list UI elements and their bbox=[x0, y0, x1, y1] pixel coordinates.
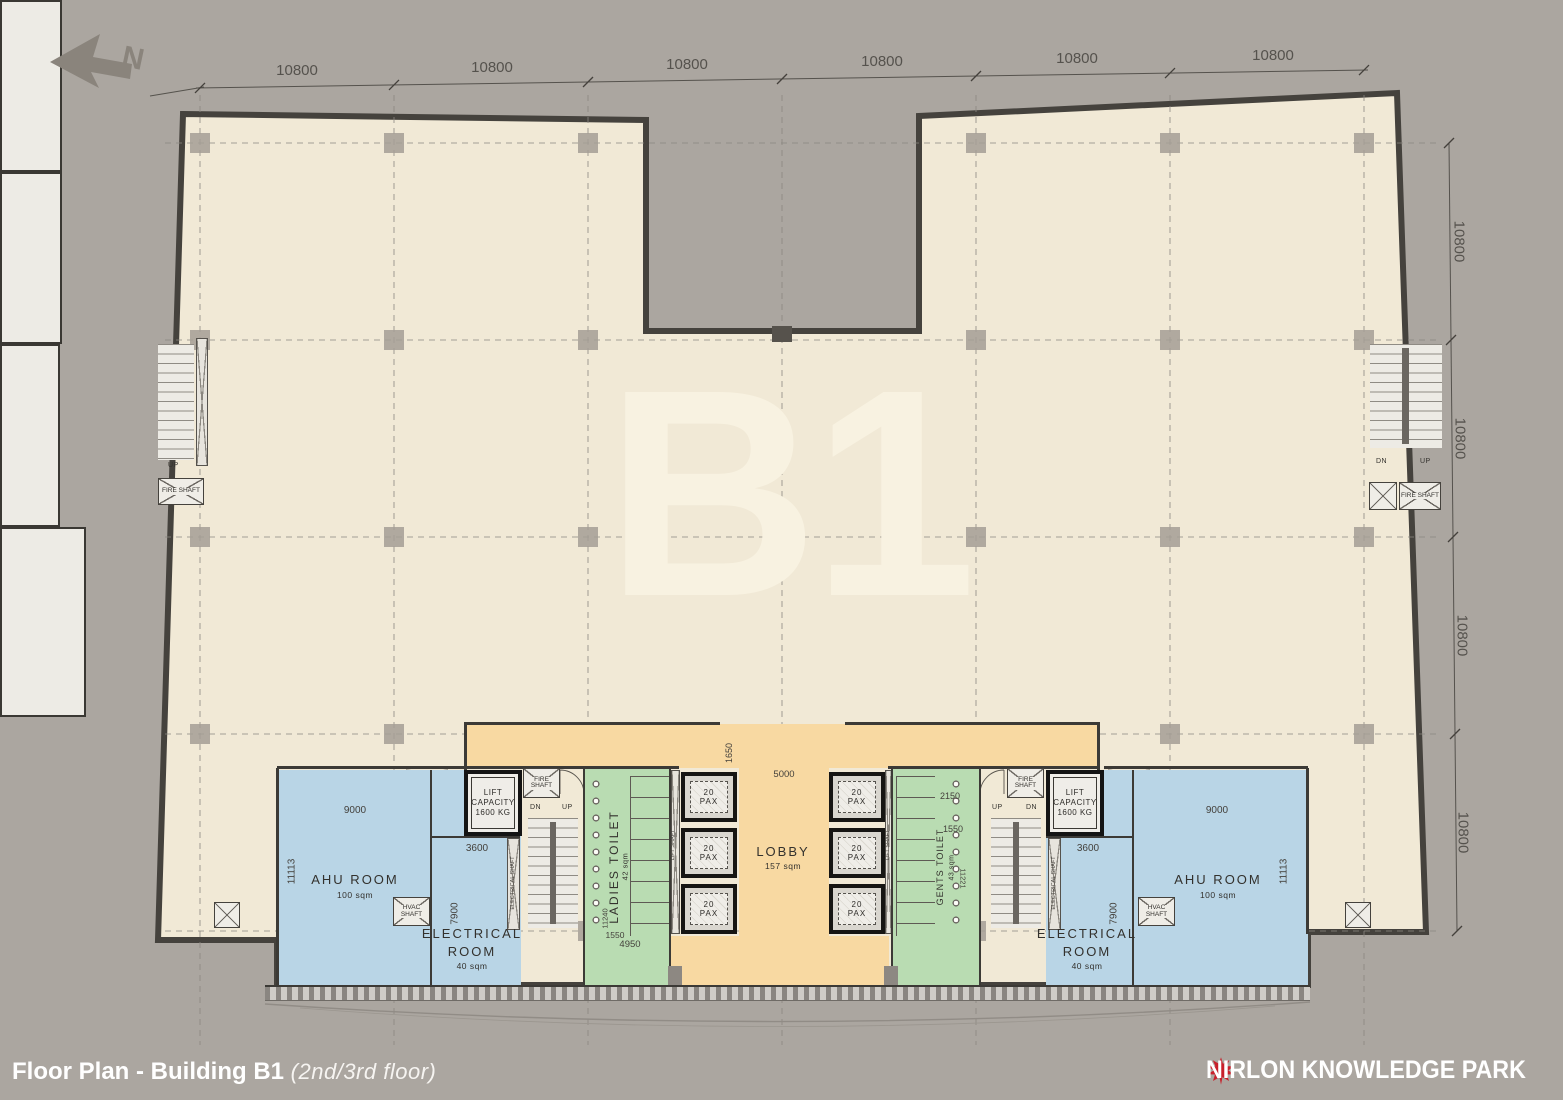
stair-stringer bbox=[1402, 348, 1409, 444]
room-name-electrical-left: ELECTRICAL bbox=[412, 926, 532, 941]
room-area-lobby: 157 sqm bbox=[733, 861, 833, 871]
fire-shaft-label: FIRE SHAFT bbox=[524, 777, 559, 790]
column bbox=[1160, 330, 1180, 350]
lift-cell: 20PAX bbox=[829, 884, 885, 934]
dimension-label: 7900 bbox=[450, 894, 461, 934]
stair-dn-label: DN bbox=[1026, 804, 1037, 811]
hvac-shaft-label: HVAC SHAFT bbox=[394, 905, 429, 918]
dimension-label: 10800 bbox=[657, 56, 717, 73]
lift-capacity-line: 1600 KG bbox=[1057, 808, 1092, 818]
dimension-label: 10800 bbox=[267, 62, 327, 79]
wall bbox=[1046, 836, 1134, 838]
lift-capacity-plate: LIFT CAPACITY 1600 KG bbox=[471, 777, 515, 829]
lift-pax-label: PAX bbox=[848, 797, 866, 806]
column bbox=[1354, 527, 1374, 547]
column bbox=[1160, 133, 1180, 153]
lift-pax-label: 20 bbox=[852, 844, 863, 853]
north-arrow-icon bbox=[50, 34, 132, 88]
lift-capacity-box-right: LIFT CAPACITY 1600 KG bbox=[1046, 770, 1104, 836]
column bbox=[966, 133, 986, 153]
room-area-electrical-left: 40 sqm bbox=[412, 961, 532, 971]
wall bbox=[1104, 766, 1308, 769]
hvac-shaft-box: HVAC SHAFT bbox=[1138, 897, 1175, 926]
lift-pax-label: PAX bbox=[700, 853, 718, 862]
column bbox=[384, 133, 404, 153]
dimension-label: 9000 bbox=[330, 805, 380, 816]
stair-up-label: UP bbox=[168, 462, 179, 469]
brand-lockup: NIRLON KNOWLEDGE PARK bbox=[1206, 1056, 1550, 1085]
floor-plan-sheet: B1 FIRE SHAFT UP DN UP FIRE SHAFT LIFT C… bbox=[0, 0, 1563, 1100]
room-area-electrical-right: 40 sqm bbox=[1027, 961, 1147, 971]
lift-pax-label: PAX bbox=[848, 853, 866, 862]
room-area-gents-toilet: 43 sqm bbox=[949, 838, 956, 898]
dimension-label: 7900 bbox=[1109, 894, 1120, 934]
fire-shaft-box: FIRE SHAFT bbox=[1399, 482, 1441, 510]
room-area-ladies-toilet: 42 sqm bbox=[621, 837, 630, 897]
lift-cell: 20PAX bbox=[681, 828, 737, 878]
dimension-label: 5000 bbox=[759, 769, 809, 780]
hvac-shaft-box: HVAC SHAFT bbox=[393, 897, 430, 926]
room-name-electrical-left: ROOM bbox=[412, 944, 532, 959]
dimension-label: 1550 bbox=[928, 824, 978, 834]
facade-band bbox=[265, 985, 1310, 1001]
dimension-label: 10800 bbox=[1452, 409, 1469, 469]
ladies-toilet-stalls bbox=[630, 776, 669, 936]
wall bbox=[669, 768, 671, 985]
lift-car: 20PAX bbox=[838, 893, 876, 925]
fire-shaft-label: FIRE SHAFT bbox=[1400, 493, 1440, 500]
dimension-label: 11113 bbox=[1279, 847, 1290, 897]
wall bbox=[1097, 722, 1100, 770]
hvac-shaft-label: HVAC SHAFT bbox=[1139, 905, 1174, 918]
column bbox=[384, 527, 404, 547]
stair-up-label: UP bbox=[562, 804, 573, 811]
fire-shaft-box: FIRE SHAFT bbox=[523, 768, 560, 798]
column bbox=[578, 133, 598, 153]
lift-capacity-line: LIFT bbox=[1066, 788, 1084, 798]
sheet-title-floor: (2nd/3rd floor) bbox=[291, 1059, 437, 1084]
dimension-label: 1650 bbox=[724, 735, 734, 771]
wall bbox=[583, 768, 585, 985]
stair-stringer bbox=[1013, 822, 1019, 924]
stair-dn-label: DN bbox=[530, 804, 541, 811]
lift-capacity-line: CAPACITY bbox=[1053, 798, 1096, 808]
column bbox=[190, 724, 210, 744]
column bbox=[1160, 724, 1180, 744]
wall bbox=[845, 722, 1098, 725]
lift-pax-label: 20 bbox=[704, 900, 715, 909]
lift-capacity-box-left: LIFT CAPACITY 1600 KG bbox=[464, 770, 522, 836]
stair-treads bbox=[158, 344, 194, 460]
lift-pax-label: PAX bbox=[848, 909, 866, 918]
fire-shaft-box: FIRE SHAFT bbox=[1007, 768, 1044, 798]
fire-shaft-label: FIRE SHAFT bbox=[1008, 777, 1043, 790]
dimension-label: 10800 bbox=[1454, 606, 1471, 666]
room-area-ahu-left: 100 sqm bbox=[295, 890, 415, 900]
fire-shaft-box: FIRE SHAFT bbox=[158, 478, 204, 505]
lobby-lower bbox=[671, 936, 889, 985]
column bbox=[190, 527, 210, 547]
lift-pax-label: 20 bbox=[852, 788, 863, 797]
lift-cell: 20PAX bbox=[829, 772, 885, 822]
lift-pax-label: PAX bbox=[700, 909, 718, 918]
sheet-title-main: Floor Plan - Building B1 bbox=[12, 1058, 284, 1085]
dimension-label: 3600 bbox=[452, 843, 502, 854]
building-watermark: B1 bbox=[588, 328, 988, 658]
dimension-label: 3600 bbox=[1063, 843, 1113, 854]
column bbox=[190, 133, 210, 153]
dimension-label: 10800 bbox=[462, 59, 522, 76]
stair-dn-label: DN bbox=[1376, 458, 1387, 465]
column bbox=[384, 724, 404, 744]
lift-pax-label: 20 bbox=[704, 844, 715, 853]
stair-shaft bbox=[196, 338, 208, 466]
fire-shaft-label: FIRE SHAFT bbox=[161, 488, 201, 495]
lift-car: 20PAX bbox=[690, 781, 728, 813]
wall bbox=[277, 766, 464, 769]
dimension-label: 10800 bbox=[1243, 47, 1303, 64]
dimension-label: 10800 bbox=[852, 53, 912, 70]
lift-cell: 20PAX bbox=[829, 828, 885, 878]
wall bbox=[466, 766, 679, 769]
dimension-label: 4950 bbox=[600, 939, 660, 950]
wall bbox=[891, 768, 893, 985]
lift-car: 20PAX bbox=[838, 837, 876, 869]
lift-cell: 20PAX bbox=[681, 884, 737, 934]
dimension-label: 9000 bbox=[1192, 805, 1242, 816]
lift-capacity-line: LIFT bbox=[484, 788, 502, 798]
room-name-ahu-right: AHU ROOM bbox=[1158, 872, 1278, 887]
electrical-shaft-label: ELECTRICAL SHAFT bbox=[1051, 853, 1057, 913]
lift-pax-label: PAX bbox=[700, 797, 718, 806]
stair-up-label: UP bbox=[1420, 458, 1431, 465]
lift-car: 20PAX bbox=[690, 893, 728, 925]
brand-name: NIRLON KNOWLEDGE PARK bbox=[1206, 1056, 1526, 1085]
lift-shaft-label: LIFT SHAFT bbox=[670, 820, 676, 870]
wall bbox=[432, 836, 520, 838]
pier bbox=[884, 966, 898, 985]
duct-box bbox=[1369, 482, 1397, 510]
stair-stringer bbox=[550, 822, 556, 924]
dimension-label: 11113 bbox=[287, 847, 298, 897]
room-area-ahu-right: 100 sqm bbox=[1158, 890, 1278, 900]
room-name-ahu-left: AHU ROOM bbox=[295, 872, 415, 887]
lift-pax-label: 20 bbox=[704, 788, 715, 797]
sheet-title: Floor Plan - Building B1 (2nd/3rd floor) bbox=[12, 1058, 436, 1086]
lift-capacity-plate: LIFT CAPACITY 1600 KG bbox=[1053, 777, 1097, 829]
dimension-label: 10800 bbox=[1047, 50, 1107, 67]
lobby-band bbox=[466, 724, 1098, 768]
room-name-lobby: LOBBY bbox=[733, 844, 833, 859]
lift-car: 20PAX bbox=[690, 837, 728, 869]
wall bbox=[464, 722, 467, 770]
wall bbox=[466, 722, 720, 725]
dimension-label: 10800 bbox=[1455, 803, 1472, 863]
duct-box bbox=[1345, 902, 1371, 928]
stair-up-label: UP bbox=[992, 804, 1003, 811]
lift-cell: 20PAX bbox=[681, 772, 737, 822]
dimension-label: 2150 bbox=[925, 791, 975, 801]
wall bbox=[276, 768, 279, 985]
room-name-electrical-right: ROOM bbox=[1027, 944, 1147, 959]
wall bbox=[888, 766, 1100, 769]
column bbox=[1160, 527, 1180, 547]
pier bbox=[668, 966, 682, 985]
lift-shaft-label: LIFT SHAFT bbox=[885, 820, 891, 870]
lift-capacity-line: CAPACITY bbox=[471, 798, 514, 808]
room-name-electrical-right: ELECTRICAL bbox=[1027, 926, 1147, 941]
wall bbox=[979, 768, 981, 985]
electrical-shaft-label: ELECTRICAL SHAFT bbox=[510, 853, 516, 913]
column bbox=[1354, 133, 1374, 153]
duct-box bbox=[214, 902, 240, 928]
lift-car: 20PAX bbox=[838, 781, 876, 813]
wall bbox=[1306, 768, 1309, 934]
lift-capacity-line: 1600 KG bbox=[475, 808, 510, 818]
dimension-label: 11221 bbox=[959, 859, 968, 899]
lift-pax-label: 20 bbox=[852, 900, 863, 909]
column bbox=[1354, 724, 1374, 744]
dimension-label: 10800 bbox=[1451, 212, 1468, 272]
column bbox=[384, 330, 404, 350]
dimension-label: 11240 bbox=[601, 899, 610, 939]
